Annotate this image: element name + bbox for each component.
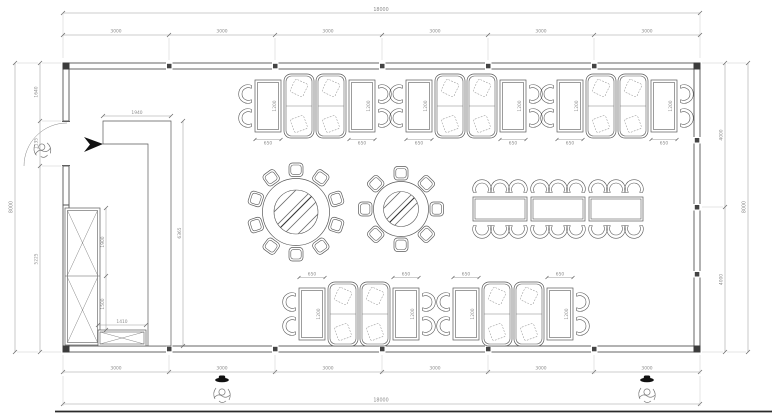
dim-top-seg-3: 3000 [322, 29, 333, 35]
dim-cabinet-upper: 1900 [100, 236, 106, 247]
dim-booth-650: 650 [462, 272, 471, 278]
low-counter [98, 330, 146, 346]
floor-plan-drawing: 18000 3000 3000 3000 3000 3000 3000 3000… [0, 0, 772, 414]
dim-bottom-seg-2: 3000 [216, 366, 227, 372]
dim-booth-1200: 1200 [366, 100, 372, 111]
dim-booth-1200: 1200 [574, 100, 580, 111]
dim-booth-650: 650 [556, 272, 565, 278]
dim-bottom-seg-6: 3000 [641, 366, 652, 372]
dim-top-seg-1: 3000 [110, 29, 121, 35]
dim-bottom-seg-4: 3000 [429, 366, 440, 372]
dim-left-total: 8000 [9, 201, 15, 213]
dim-bottom-seg-3: 3000 [322, 366, 333, 372]
service-counter-partition [103, 121, 171, 346]
dim-left-seg-3: 5225 [34, 253, 40, 264]
floor-plan-canvas: 18000 3000 3000 3000 3000 3000 3000 3000… [0, 0, 772, 414]
dim-booth-650: 650 [660, 141, 669, 147]
dimension-left: 1640 1135 5225 8000 [9, 61, 62, 354]
dim-counter-width: 1410 [116, 319, 127, 325]
dim-booth-650: 650 [308, 272, 317, 278]
wall-left-window [63, 166, 69, 205]
person-figure-right [639, 376, 656, 403]
dim-bottom-seg-5: 3000 [535, 366, 546, 372]
dim-booth-1200: 1200 [470, 308, 476, 319]
wall-left-upper [63, 63, 69, 121]
dim-top-seg-4: 3000 [429, 29, 440, 35]
door-swing-arc [24, 123, 67, 166]
dim-left-seg-1: 1640 [34, 86, 40, 97]
dimension-cabinet: 1900 1500 1410 [96, 206, 148, 332]
dimension-top: 18000 3000 3000 3000 3000 3000 3000 [61, 7, 702, 60]
dim-right-total: 8000 [742, 201, 748, 213]
dim-top-seg-5: 3000 [535, 29, 546, 35]
dim-booth-650: 650 [402, 272, 411, 278]
round-table-small [359, 167, 444, 252]
dim-partition-width: 1940 [131, 110, 142, 116]
round-table-large [247, 163, 345, 261]
dim-booth-650: 650 [509, 141, 518, 147]
dim-booth-650: 650 [264, 141, 273, 147]
dim-left-seg-2: 1135 [34, 138, 40, 149]
dim-booth-1200: 1200 [423, 100, 429, 111]
door-leaf [84, 137, 103, 152]
banquet-table [473, 180, 644, 239]
dim-booth-1200: 1200 [410, 308, 416, 319]
dim-partition-height: 6365 [177, 227, 183, 238]
dim-booth-1200: 1200 [272, 100, 278, 111]
dim-bottom-total: 18000 [373, 398, 388, 404]
dimension-right: 4000 4000 8000 [702, 61, 750, 354]
dim-booth-650: 650 [415, 141, 424, 147]
dim-booth-1200: 1200 [316, 308, 322, 319]
dim-booth-1200: 1200 [564, 308, 570, 319]
dim-cabinet-lower: 1500 [100, 298, 106, 309]
dim-top-seg-2: 3000 [216, 29, 227, 35]
dim-top-total: 18000 [373, 7, 388, 13]
dim-right-seg-2: 4000 [719, 274, 725, 285]
dim-booth-650: 650 [358, 141, 367, 147]
dimension-partition: 1940 6365 [101, 110, 185, 348]
dim-right-seg-1: 4000 [719, 129, 725, 140]
person-figure-left [214, 376, 231, 403]
dim-bottom-seg-1: 3000 [110, 366, 121, 372]
dim-booth-650: 650 [566, 141, 575, 147]
cabinet-unit [65, 208, 100, 345]
dim-booth-1200: 1200 [517, 100, 523, 111]
dim-top-seg-6: 3000 [641, 29, 652, 35]
dimension-bottom: 3000 3000 3000 3000 3000 3000 18000 [61, 355, 702, 406]
dim-booth-1200: 1200 [668, 100, 674, 111]
